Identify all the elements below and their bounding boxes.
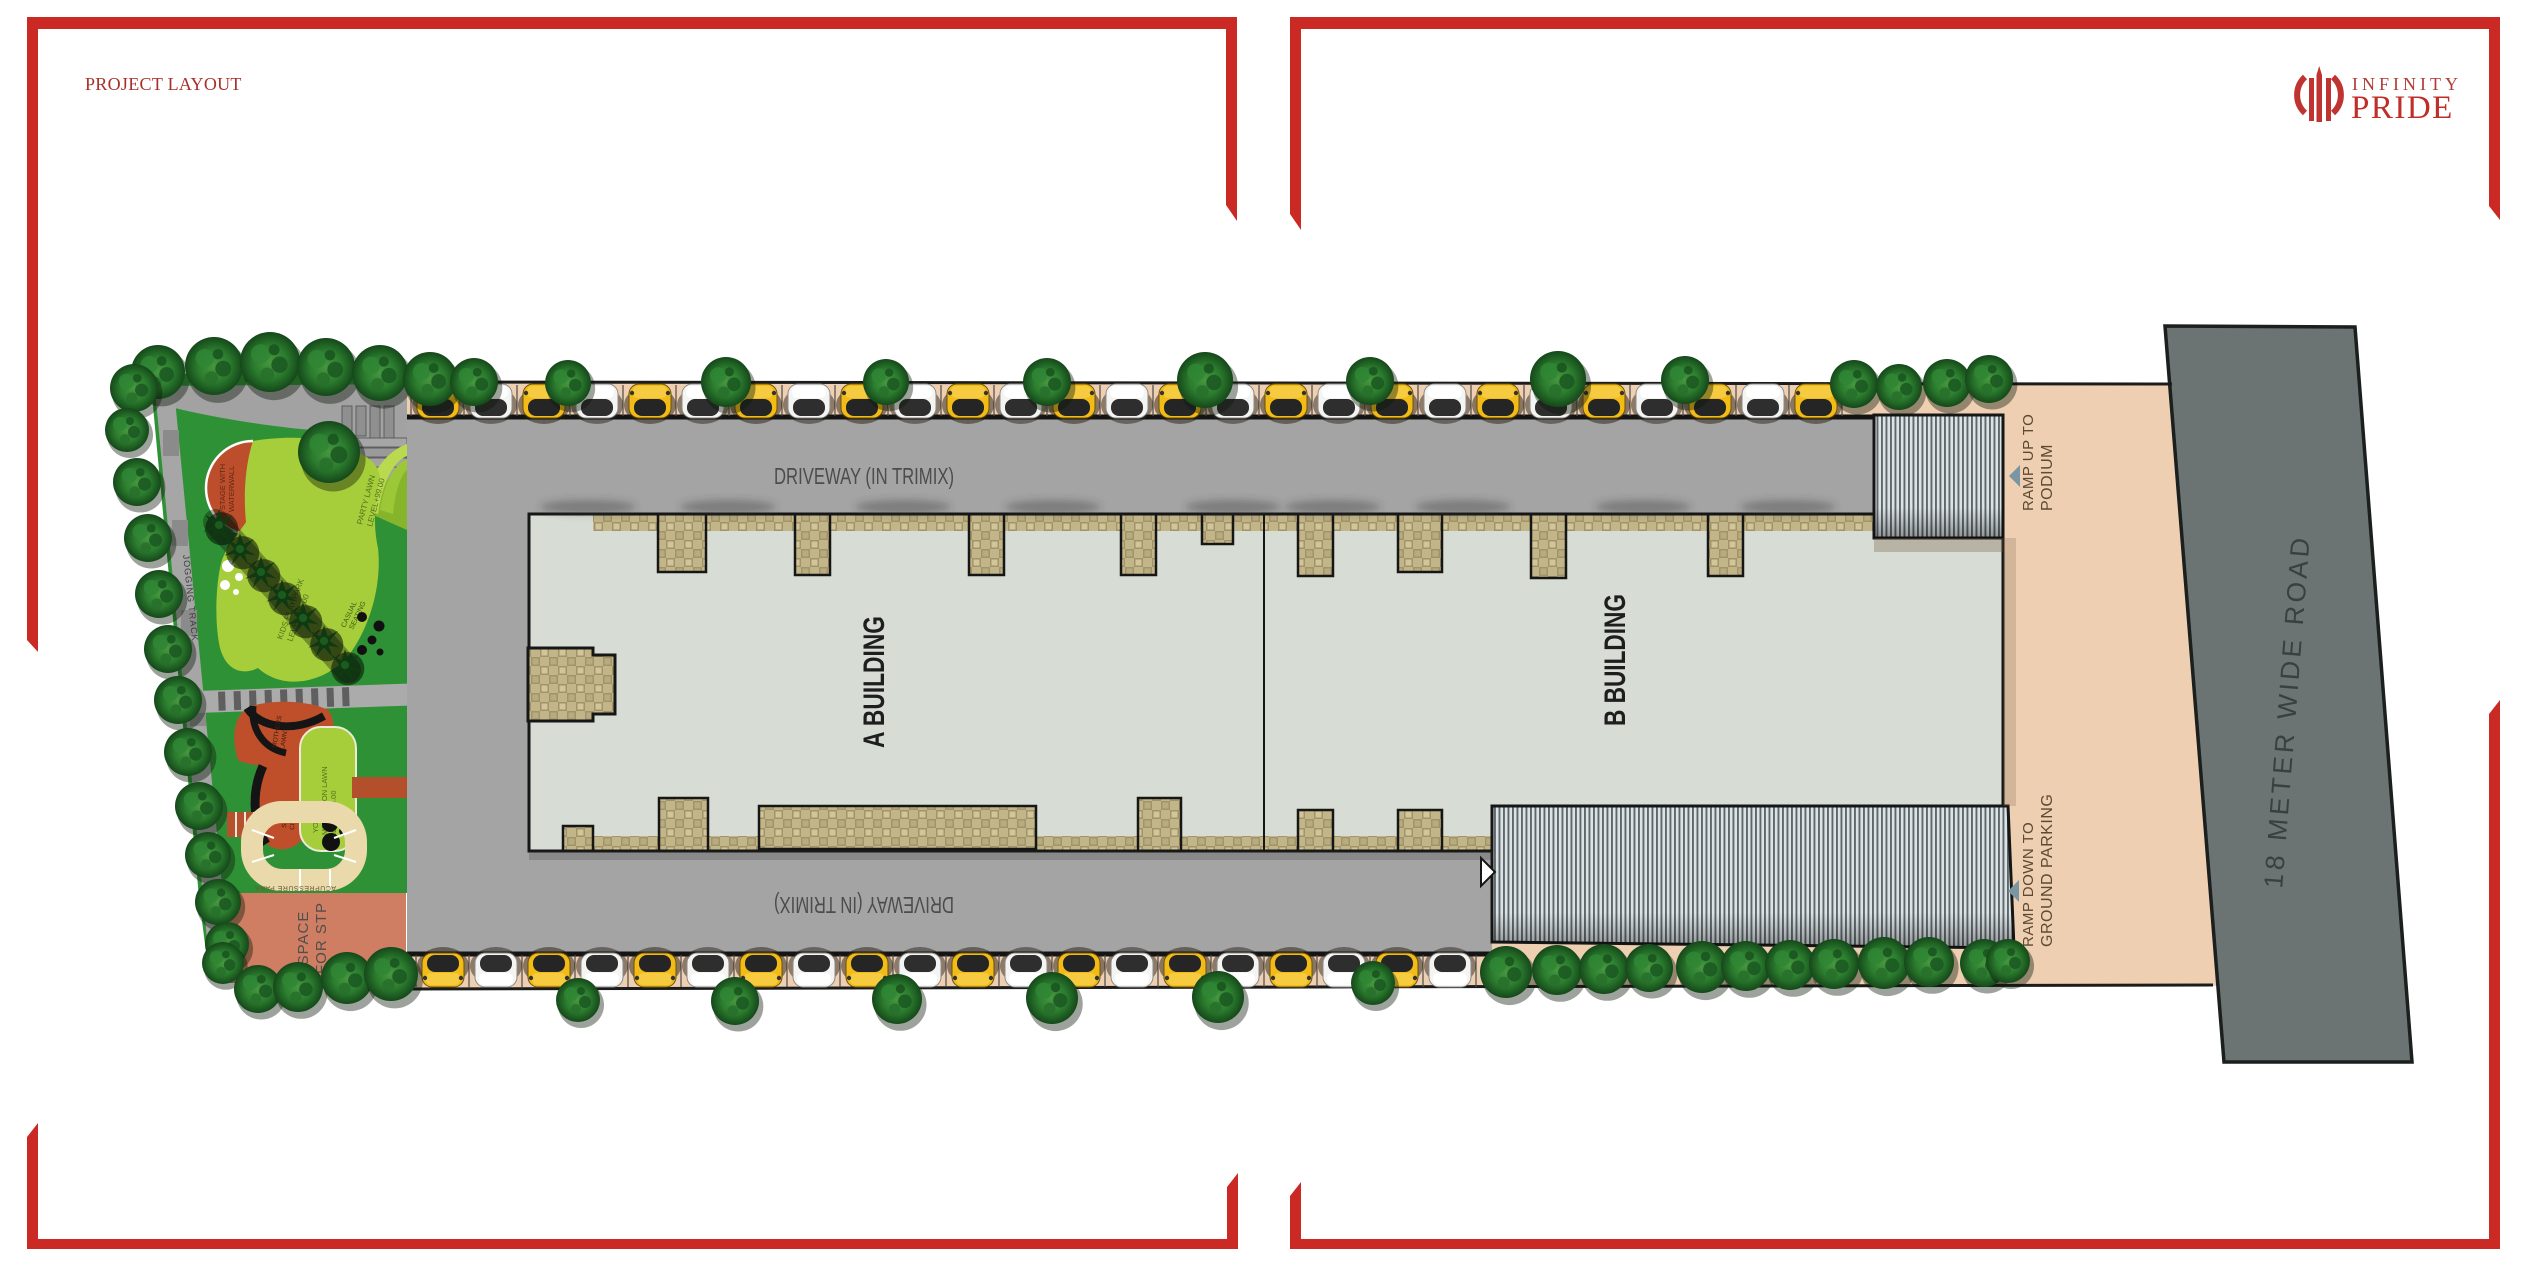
svg-text:B BUILDING: B BUILDING [1599, 594, 1632, 726]
svg-text:PODIUM: PODIUM [2039, 444, 2056, 511]
svg-text:PRIDE: PRIDE [2351, 90, 2454, 126]
svg-text:DRIVEWAY (IN TRIMIX): DRIVEWAY (IN TRIMIX) [774, 892, 954, 918]
svg-text:PROJECT LAYOUT: PROJECT LAYOUT [85, 74, 242, 94]
svg-text:ACUPRESSURE PARK: ACUPRESSURE PARK [254, 884, 336, 891]
svg-text:DRIVEWAY (IN TRIMIX): DRIVEWAY (IN TRIMIX) [774, 463, 954, 489]
svg-text:SPACE: SPACE [295, 911, 312, 966]
svg-text:RAMP DOWN TO: RAMP DOWN TO [2020, 822, 2037, 947]
svg-text:A BUILDING: A BUILDING [858, 616, 891, 748]
svg-text:STAGE WITH: STAGE WITH [218, 464, 227, 510]
svg-text:GROUND PARKING: GROUND PARKING [2039, 794, 2056, 947]
svg-text:WATERWALL: WATERWALL [227, 466, 236, 512]
svg-text:RAMP UP TO: RAMP UP TO [2020, 414, 2037, 511]
